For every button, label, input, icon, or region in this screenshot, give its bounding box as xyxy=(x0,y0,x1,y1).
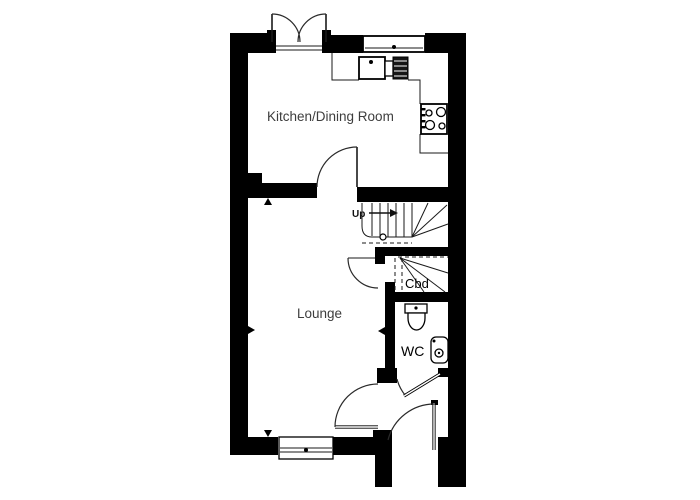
hob-burner xyxy=(439,123,445,129)
french-door-swing-right xyxy=(298,14,326,42)
stair-winders xyxy=(412,203,448,237)
left-wall xyxy=(230,33,248,455)
sink-half-bowl xyxy=(385,61,393,76)
window-frame xyxy=(363,36,425,52)
bottom-wall-mid xyxy=(333,437,377,455)
counter-edge-left xyxy=(332,53,359,80)
lounge-right-wall xyxy=(385,282,395,377)
hall-lounge-door-swing xyxy=(335,384,378,427)
kitchen-hob xyxy=(421,104,447,134)
top-wall-left xyxy=(230,33,273,53)
kitchen-sink xyxy=(359,57,408,79)
kitchen-lounge-wall xyxy=(248,183,317,198)
kitchen-door xyxy=(317,147,357,187)
counter-edge-right-bottom xyxy=(420,134,448,153)
room-labels: Kitchen/Dining Room Lounge xyxy=(267,109,394,321)
understairs-wall xyxy=(375,247,450,256)
front-door-swing xyxy=(388,404,435,440)
kitchen-label: Kitchen/Dining Room xyxy=(267,109,394,124)
marker-up xyxy=(264,198,272,205)
basin-drain-dot xyxy=(438,352,440,354)
stair-foot-door xyxy=(348,258,378,288)
kitchen-stairs-wall xyxy=(357,187,450,202)
wc-door-leaf-core xyxy=(404,374,440,396)
hob-burner xyxy=(426,110,432,116)
wc-door xyxy=(397,374,440,396)
window-catch xyxy=(392,45,396,49)
wc-label: WC xyxy=(401,343,424,359)
french-door-swing-left xyxy=(272,14,300,42)
marker-down xyxy=(264,430,272,437)
wc-door-swing xyxy=(397,379,405,395)
french-doors xyxy=(272,14,326,50)
bottom-right-wall-block xyxy=(438,437,466,487)
toilet-button xyxy=(414,306,417,309)
hob-burner xyxy=(437,108,446,117)
hob-burner xyxy=(426,121,435,130)
kitchen-window xyxy=(363,36,425,52)
floor-plan-page: Up Cbd WC xyxy=(0,0,700,500)
window-catch xyxy=(304,448,308,452)
bottom-wall-left xyxy=(248,437,278,455)
stair-foot-door-swing xyxy=(348,258,378,288)
wc-room: WC xyxy=(401,304,448,363)
newel-post xyxy=(380,234,386,240)
floor-plan-drawing: Up Cbd WC xyxy=(0,0,700,500)
stair-treads xyxy=(372,203,412,237)
toilet-bowl xyxy=(408,313,425,330)
top-wall-mid xyxy=(327,35,363,53)
porch-stub-left xyxy=(375,455,392,487)
counter-edge-right-top xyxy=(408,80,420,104)
kitchen-lounge-wall-step xyxy=(248,173,262,183)
kitchen-door-swing xyxy=(317,147,357,187)
cupboard: Cbd xyxy=(395,257,448,292)
hall-lounge-door xyxy=(335,384,378,427)
basin-tap xyxy=(433,340,436,343)
wc-door-frame-left xyxy=(377,368,397,383)
sink-tap xyxy=(369,60,373,64)
marker-right xyxy=(248,326,255,334)
up-arrow-head xyxy=(390,209,398,217)
right-wall xyxy=(448,33,466,437)
cupboard-label: Cbd xyxy=(405,276,429,291)
stairs-up-label: Up xyxy=(352,209,365,220)
stairs: Up xyxy=(352,203,448,243)
hall-door-post xyxy=(373,430,392,455)
lounge-label: Lounge xyxy=(297,306,342,321)
understairs-wall-stub xyxy=(375,247,385,264)
front-door xyxy=(388,400,438,450)
lounge-window xyxy=(279,437,333,459)
marker-left xyxy=(378,327,385,335)
